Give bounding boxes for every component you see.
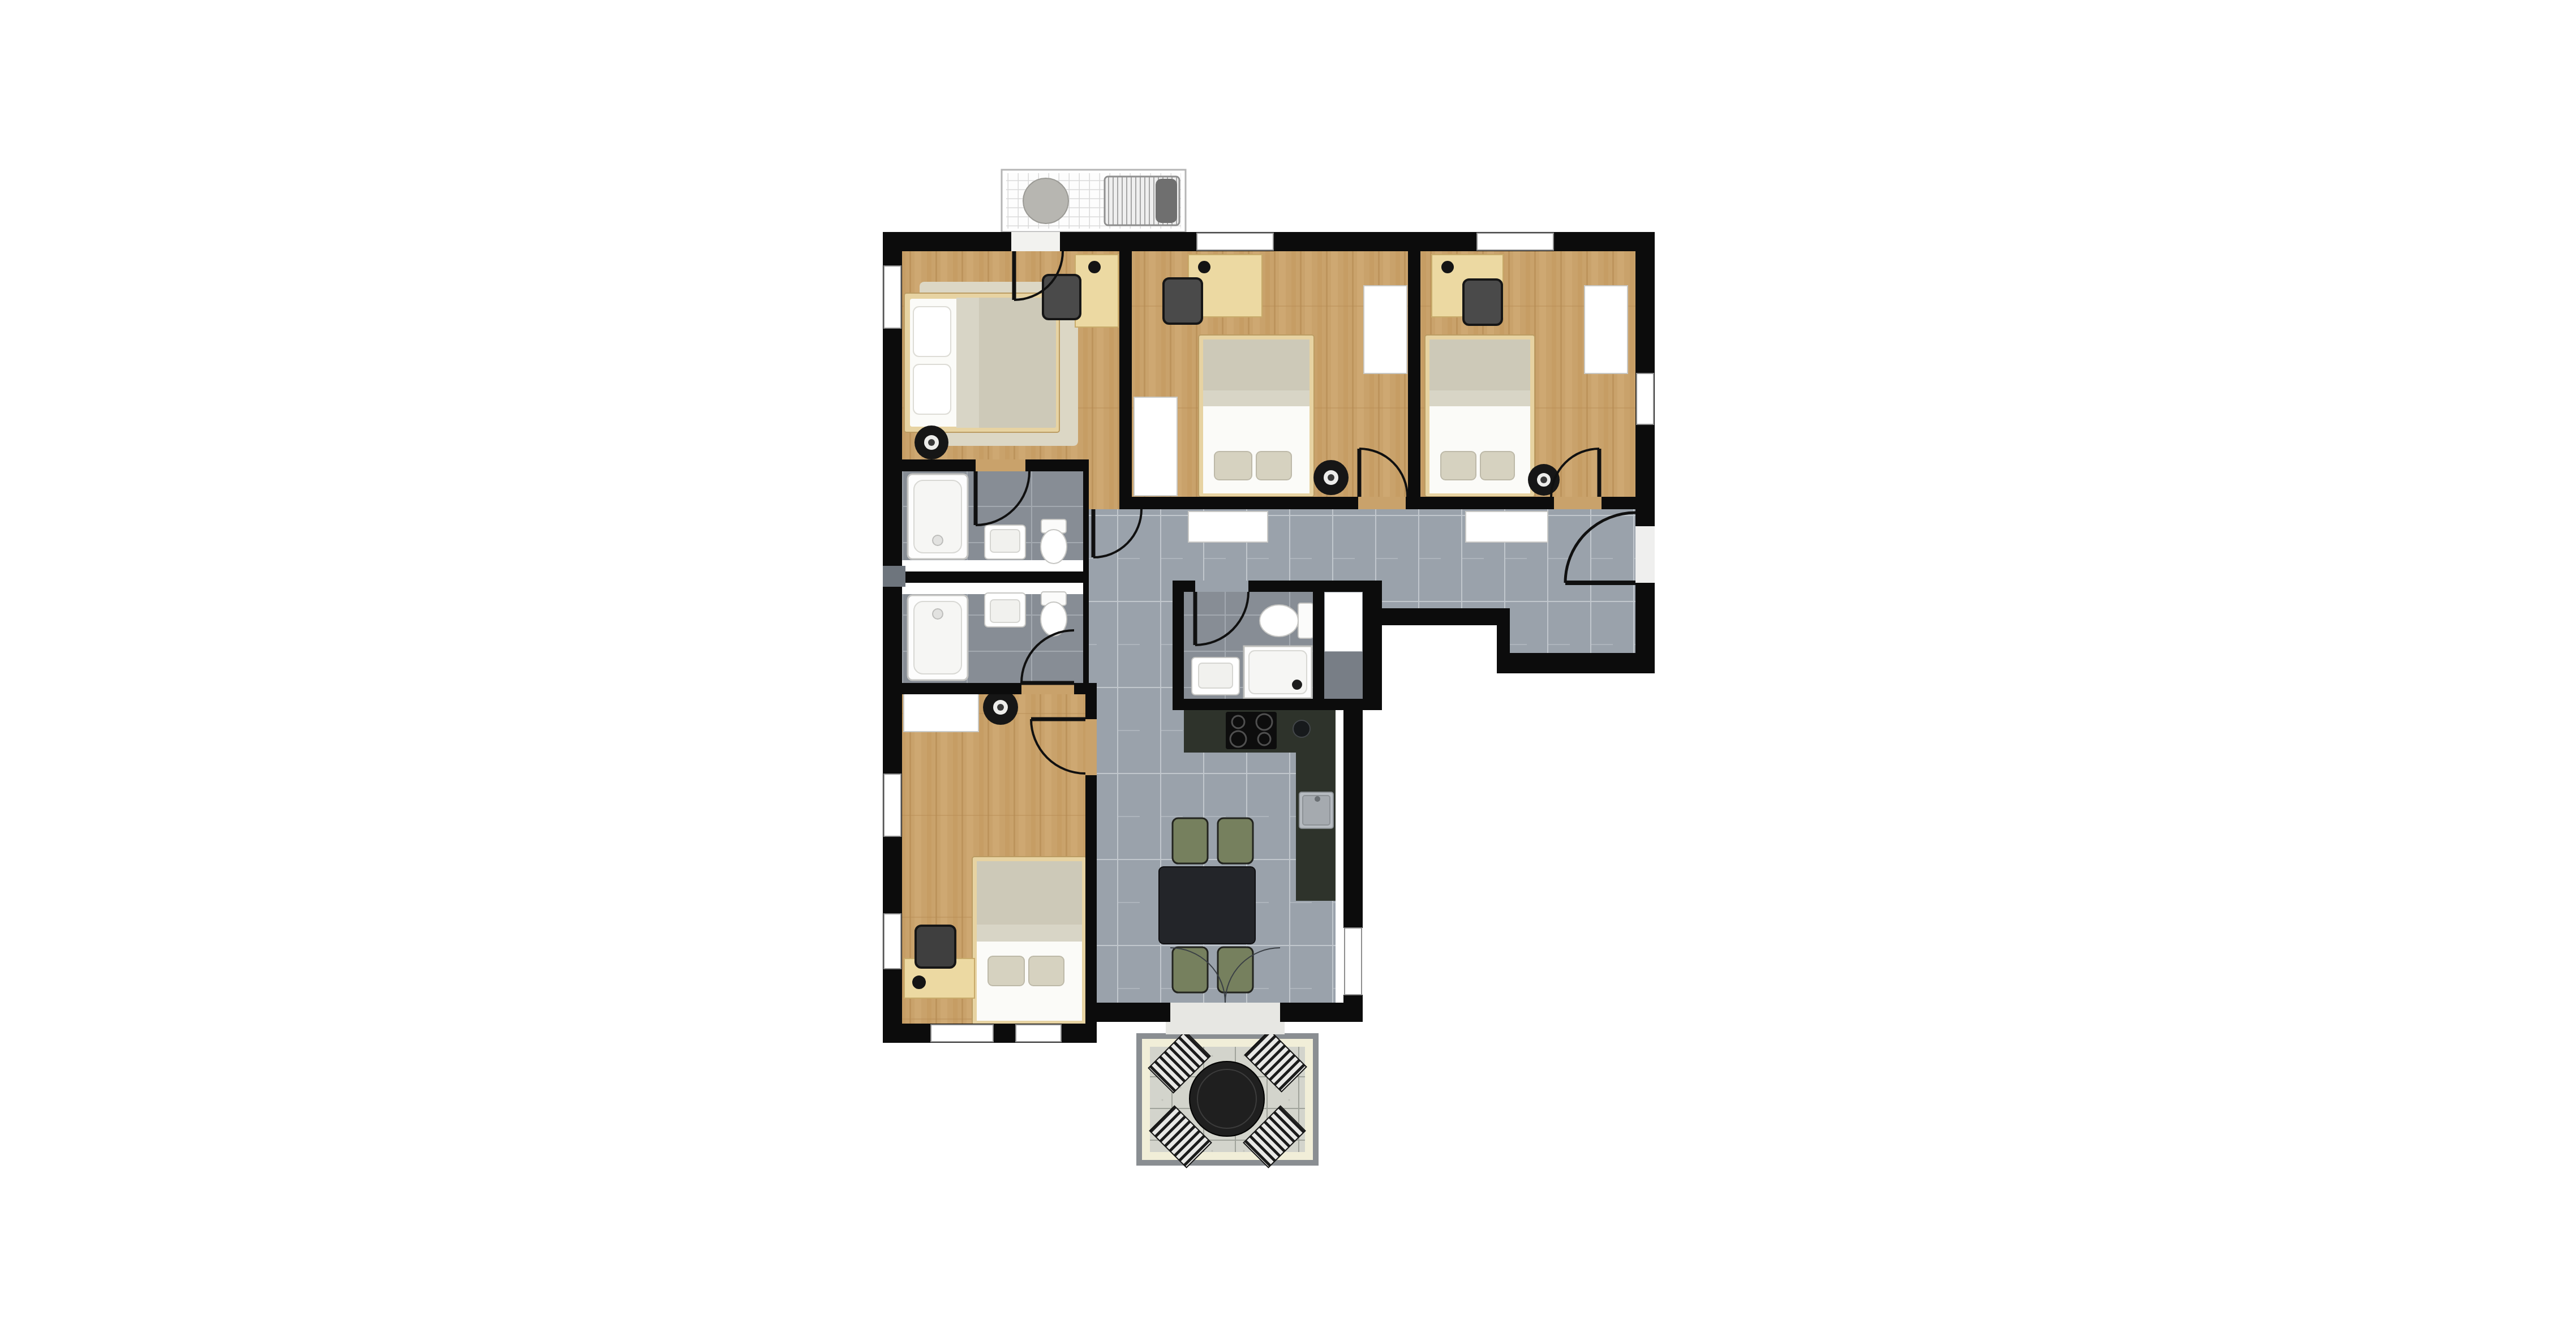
hall-console-left <box>1188 512 1268 542</box>
bedroom4-desk-lamp <box>912 975 926 989</box>
wall-bathrooms-right <box>1083 459 1089 683</box>
opening-bathroom3-door <box>1195 581 1248 592</box>
wall-bedroom1-bedroom2 <box>1119 251 1132 497</box>
wall-bathrooms-middle <box>902 571 1089 583</box>
bedroom4-pillow-right <box>1029 956 1064 986</box>
balcony-table <box>1190 1061 1264 1136</box>
bedroom2-speaker-center <box>1328 474 1334 481</box>
bedroom2-blanket-fold <box>1203 390 1310 406</box>
bedroom2-sideboard <box>1134 397 1177 496</box>
opening-bedroom3-door <box>1554 497 1602 509</box>
bedroom3-pillow-right <box>1480 452 1514 480</box>
bedroom1-pillow-bottom <box>913 364 951 414</box>
window-left-bedroom1 <box>884 266 901 328</box>
bathroom1-bathtub-drain <box>933 535 943 545</box>
bathroom1-sink-basin <box>990 530 1020 552</box>
bedroom2-desk-lamp <box>1198 261 1210 273</box>
opening-bathroom1-door <box>976 459 1025 471</box>
utility-duct <box>1324 652 1363 699</box>
dining-table <box>1159 867 1255 944</box>
bedroom2-desk-chair <box>1164 278 1202 324</box>
bedroom1-desk-lamp <box>1088 261 1101 273</box>
floor-plan <box>0 0 2576 1328</box>
bedroom1-speaker-center <box>928 439 935 446</box>
wall-entry-bottom <box>1497 653 1655 673</box>
dining-chair-sw <box>1173 947 1208 992</box>
bathroom2-sink-basin <box>990 600 1020 622</box>
bedroom2-pillow-left <box>1214 452 1252 480</box>
bedroom3-wardrobe <box>1585 286 1628 373</box>
bedroom3-blanket-fold <box>1429 390 1530 406</box>
wall-kitchen-right-stub <box>1343 995 1363 1022</box>
wall-bedroom2-bedroom3 <box>1408 251 1420 497</box>
bedroom1-duvet-fold <box>956 298 979 428</box>
wall-hall-bottom <box>1382 608 1497 625</box>
window-bottom-bedroom4-right <box>1016 1025 1061 1042</box>
dining-chair-nw <box>1173 818 1208 863</box>
bedroom4-speaker-center <box>997 704 1004 711</box>
wall-wing-right <box>1363 581 1382 710</box>
opening-french-door <box>1170 1003 1280 1022</box>
wall-kitchen-right <box>1343 710 1363 928</box>
hallway-floor-vertical-lower <box>1097 694 1173 1003</box>
bedroom2-pillow-right <box>1256 452 1291 480</box>
bathroom3-toilet-bowl <box>1260 605 1298 637</box>
bedroom2-wardrobe <box>1364 286 1407 373</box>
dining-chair-ne <box>1218 818 1253 863</box>
wall-right <box>1635 251 1655 673</box>
bedroom1-desk-chair <box>1043 275 1080 319</box>
bedroom1-door-bay-floor <box>1089 459 1119 509</box>
window-right-bedroom3 <box>1637 373 1654 424</box>
bathroom2-ledge <box>971 583 1083 594</box>
window-bottom-bedroom4-left <box>931 1025 993 1042</box>
window-top-bedroom3 <box>1477 233 1553 250</box>
bedroom4-pillow-left <box>988 956 1024 986</box>
opening-upper-balcony-door <box>1011 232 1060 251</box>
opening-bedroom4-door <box>1085 719 1097 775</box>
hallway-floor-vertical-upper <box>1089 608 1173 694</box>
utility-shaft <box>1324 592 1363 652</box>
bedroom3-desk-chair <box>1463 280 1502 325</box>
bedroom4-dresser <box>904 693 978 732</box>
bedroom4-desk-chair <box>916 926 955 968</box>
bedroom3-speaker-center <box>1540 476 1547 483</box>
bathroom1-ledge <box>971 560 1083 571</box>
bedroom3-pillow-left <box>1441 452 1476 480</box>
bathroom2-bathtub-drain <box>933 609 943 619</box>
window-left-bedroom4-lower <box>884 914 901 969</box>
kitchen-sink-tap <box>1315 796 1320 802</box>
floor-plan-page <box>0 0 2576 1328</box>
wall-bathroom3-right <box>1313 592 1324 699</box>
window-left-bedroom4-upper <box>884 774 901 836</box>
bedroom4-blanket-fold <box>977 925 1082 942</box>
wall-bathroom3-bottom <box>1173 699 1363 710</box>
bathroom3-sink-basin <box>1199 663 1233 688</box>
bathroom3-toilet-cistern <box>1298 603 1313 638</box>
kitchen-faucet <box>1293 720 1310 737</box>
opening-bedroom2-door <box>1358 497 1406 509</box>
bathroom3-shower-drain <box>1292 680 1302 690</box>
upper-balcony-table <box>1023 178 1068 224</box>
bathroom1-toilet-bowl <box>1041 530 1067 564</box>
window-top-bedroom2 <box>1197 233 1273 250</box>
bedroom1-pillow-top <box>913 307 951 356</box>
utility-niche <box>883 566 905 587</box>
hall-console-right <box>1466 512 1548 542</box>
sun-lounger-back <box>1156 179 1177 223</box>
wall-bathroom3-left <box>1173 592 1184 710</box>
entry-floor <box>1510 608 1635 653</box>
bedroom3-desk-lamp <box>1441 261 1454 273</box>
entry-door-threshold <box>1635 526 1655 583</box>
window-kitchen-right <box>1345 928 1362 995</box>
